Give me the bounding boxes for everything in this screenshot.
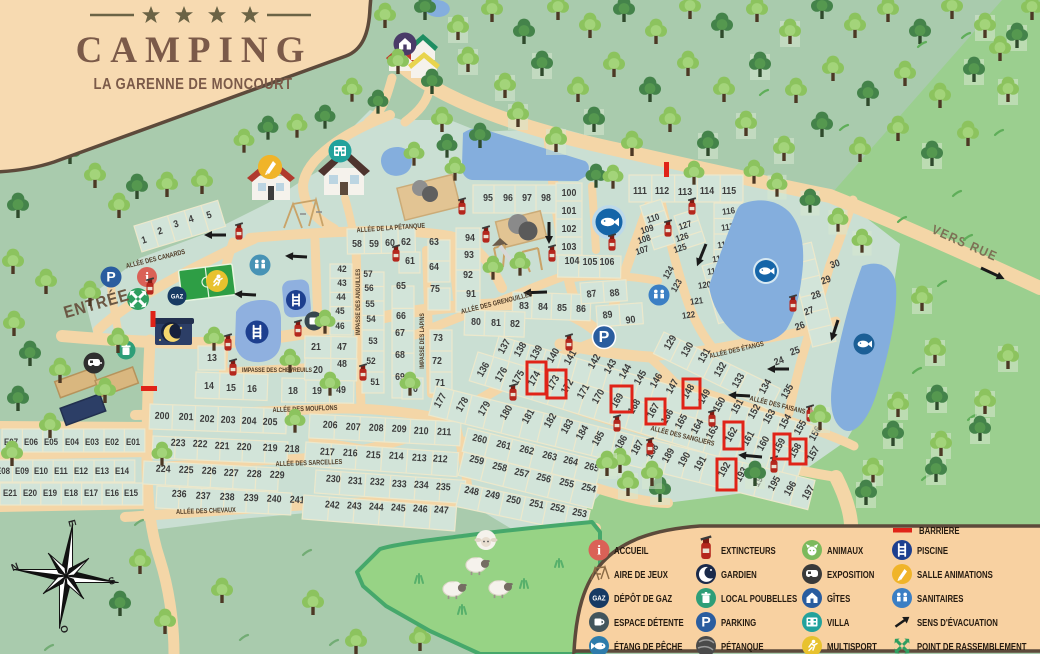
svg-text:E20: E20 [23,488,37,499]
svg-text:48: 48 [337,357,347,369]
svg-text:115: 115 [722,184,736,196]
svg-text:219: 219 [263,441,278,453]
svg-text:221: 221 [215,439,230,451]
svg-text:68: 68 [395,348,405,360]
svg-text:237: 237 [196,489,211,501]
svg-text:89: 89 [602,308,613,321]
svg-text:225: 225 [179,463,194,475]
svg-text:P: P [701,614,710,630]
svg-text:E04: E04 [65,437,79,448]
svg-text:67: 67 [395,326,405,338]
svg-text:73: 73 [433,331,443,343]
svg-text:116: 116 [721,205,735,217]
svg-text:239: 239 [244,491,259,503]
svg-text:E08: E08 [0,466,10,477]
svg-text:72: 72 [432,354,442,366]
svg-text:236: 236 [172,487,187,499]
svg-text:E10: E10 [34,466,48,477]
svg-text:223: 223 [171,436,186,448]
svg-text:85: 85 [557,301,567,313]
svg-text:PISCINE: PISCINE [917,545,948,556]
svg-text:220: 220 [237,440,252,452]
svg-text:96: 96 [503,191,513,203]
svg-text:VILLA: VILLA [827,617,850,628]
svg-text:44: 44 [336,292,345,303]
svg-text:E03: E03 [85,437,99,448]
svg-text:18: 18 [288,384,298,396]
svg-text:106: 106 [600,255,615,267]
svg-text:245: 245 [391,501,407,514]
svg-text:247: 247 [434,503,450,516]
svg-text:217: 217 [320,445,335,458]
svg-text:59: 59 [369,237,379,249]
svg-text:218: 218 [285,442,300,454]
svg-text:87: 87 [586,287,597,300]
svg-text:P: P [599,329,610,346]
svg-text:IMPASSE DES ANGUILLES: IMPASSE DES ANGUILLES [356,269,363,335]
svg-text:226: 226 [202,464,217,476]
svg-text:206: 206 [323,418,338,430]
svg-text:DÉPÔT DE GAZ: DÉPÔT DE GAZ [614,592,672,605]
svg-text:61: 61 [405,254,415,266]
svg-text:88: 88 [609,286,620,299]
svg-text:64: 64 [429,260,439,272]
svg-text:46: 46 [335,321,344,332]
svg-text:100: 100 [562,186,577,198]
svg-text:PARKING: PARKING [721,617,756,628]
svg-text:58: 58 [352,237,362,249]
svg-text:204: 204 [242,414,258,426]
svg-text:209: 209 [392,422,407,434]
svg-text:80: 80 [471,315,481,327]
svg-text:42: 42 [337,264,346,275]
svg-text:MULTISPORT: MULTISPORT [827,641,877,652]
svg-text:228: 228 [247,467,262,479]
svg-text:211: 211 [437,425,452,437]
svg-text:15: 15 [226,381,236,393]
svg-text:232: 232 [370,475,385,488]
svg-text:227: 227 [224,466,239,478]
svg-text:202: 202 [200,412,215,424]
svg-text:75: 75 [430,282,440,294]
svg-text:E18: E18 [64,488,78,499]
svg-text:246: 246 [413,502,429,515]
svg-text:IMPASSE DES LAPINS: IMPASSE DES LAPINS [420,313,427,369]
svg-text:ESPACE DÉTENTE: ESPACE DÉTENTE [614,616,684,629]
svg-text:63: 63 [429,235,439,247]
svg-text:235: 235 [436,480,451,493]
svg-text:231: 231 [348,474,363,487]
svg-text:P: P [106,269,115,285]
svg-text:E21: E21 [3,488,17,499]
svg-text:205: 205 [263,415,278,427]
svg-text:E14: E14 [115,466,129,477]
svg-text:IMPASSE DES CHEVREUILS: IMPASSE DES CHEVREUILS [242,368,312,375]
svg-text:101: 101 [562,204,577,216]
svg-text:21: 21 [311,340,321,352]
svg-text:CAMPING: CAMPING [76,30,313,71]
svg-text:66: 66 [396,309,406,321]
svg-text:238: 238 [220,490,235,502]
svg-text:GARDIEN: GARDIEN [721,569,757,580]
svg-text:i: i [597,544,601,559]
svg-text:PÉTANQUE: PÉTANQUE [721,640,764,653]
svg-text:200: 200 [155,409,170,421]
svg-text:97: 97 [522,191,532,203]
svg-text:E13: E13 [95,466,109,477]
svg-text:52: 52 [366,356,375,367]
svg-text:E05: E05 [44,437,58,448]
svg-text:GAZ: GAZ [171,293,184,300]
svg-text:214: 214 [389,449,405,462]
svg-text:E17: E17 [84,488,98,499]
svg-text:14: 14 [204,379,214,391]
svg-text:13: 13 [207,351,217,363]
svg-text:EXPOSITION: EXPOSITION [827,569,875,580]
svg-text:213: 213 [412,451,427,464]
svg-text:53: 53 [368,336,377,347]
svg-text:E12: E12 [74,466,88,477]
svg-text:56: 56 [364,283,373,294]
svg-text:121: 121 [689,295,704,307]
svg-text:47: 47 [337,340,347,352]
svg-text:EXTINCTEURS: EXTINCTEURS [721,545,776,556]
svg-text:54: 54 [366,314,375,325]
svg-text:84: 84 [538,300,548,312]
svg-text:93: 93 [464,248,474,260]
svg-text:210: 210 [414,424,429,436]
svg-text:LOCAL POUBELLES: LOCAL POUBELLES [721,593,797,604]
svg-text:57: 57 [363,269,372,280]
svg-text:114: 114 [700,184,715,196]
svg-text:AIRE DE JEUX: AIRE DE JEUX [614,569,669,580]
svg-text:43: 43 [337,278,346,289]
svg-text:215: 215 [366,448,381,461]
svg-text:244: 244 [369,500,385,513]
svg-text:103: 103 [562,240,577,252]
svg-text:243: 243 [347,499,363,512]
svg-text:95: 95 [483,191,493,203]
svg-text:113: 113 [678,185,692,197]
svg-text:51: 51 [370,377,379,388]
svg-text:E19: E19 [43,488,57,499]
svg-text:SENS D'ÉVACUATION: SENS D'ÉVACUATION [917,616,998,629]
svg-text:240: 240 [267,492,282,504]
svg-text:SANITAIRES: SANITAIRES [917,593,963,604]
svg-text:98: 98 [541,191,551,203]
svg-text:LA GARENNE DE MONCOURT: LA GARENNE DE MONCOURT [93,76,292,93]
svg-text:234: 234 [414,478,430,491]
svg-text:112: 112 [655,184,669,196]
svg-text:122: 122 [681,309,696,321]
svg-text:55: 55 [365,299,374,310]
svg-text:POINT DE RASSEMBLEMENT: POINT DE RASSEMBLEMENT [917,641,1027,652]
svg-text:241: 241 [290,493,305,505]
svg-text:SALLE ANIMATIONS: SALLE ANIMATIONS [917,569,993,580]
svg-text:90: 90 [625,313,636,326]
svg-text:201: 201 [179,410,194,422]
svg-text:16: 16 [247,382,257,394]
svg-text:203: 203 [221,413,236,425]
svg-text:105: 105 [583,255,598,267]
svg-text:E06: E06 [24,437,38,448]
svg-text:ACCUEIL: ACCUEIL [614,545,649,556]
svg-text:94: 94 [465,231,475,243]
svg-text:208: 208 [369,421,384,433]
svg-text:233: 233 [392,477,407,490]
svg-text:E15: E15 [124,488,138,499]
svg-text:62: 62 [401,235,411,247]
svg-text:65: 65 [396,279,406,291]
svg-text:45: 45 [335,306,344,317]
svg-text:230: 230 [326,472,341,485]
svg-text:82: 82 [510,317,520,329]
svg-text:229: 229 [270,468,285,480]
svg-text:102: 102 [562,222,577,234]
svg-text:E11: E11 [54,466,68,477]
svg-text:ÉTANG DE PÊCHE: ÉTANG DE PÊCHE [614,640,682,653]
svg-text:92: 92 [463,268,473,280]
svg-text:104: 104 [565,254,580,266]
svg-text:91: 91 [466,287,476,299]
svg-text:E09: E09 [15,466,29,477]
svg-text:81: 81 [491,316,501,328]
svg-text:E01: E01 [126,437,140,448]
svg-text:222: 222 [193,437,208,449]
svg-text:GAZ: GAZ [592,595,605,602]
svg-text:216: 216 [343,446,358,459]
svg-text:212: 212 [433,452,448,465]
svg-text:E16: E16 [105,488,119,499]
svg-text:ANIMAUX: ANIMAUX [827,545,864,556]
svg-text:E02: E02 [105,437,119,448]
svg-text:207: 207 [346,420,361,432]
svg-text:20: 20 [313,363,323,375]
svg-text:GÎTES: GÎTES [827,592,850,605]
svg-text:BARRIERE: BARRIERE [919,525,960,536]
svg-text:242: 242 [325,498,341,511]
svg-text:111: 111 [633,184,647,196]
